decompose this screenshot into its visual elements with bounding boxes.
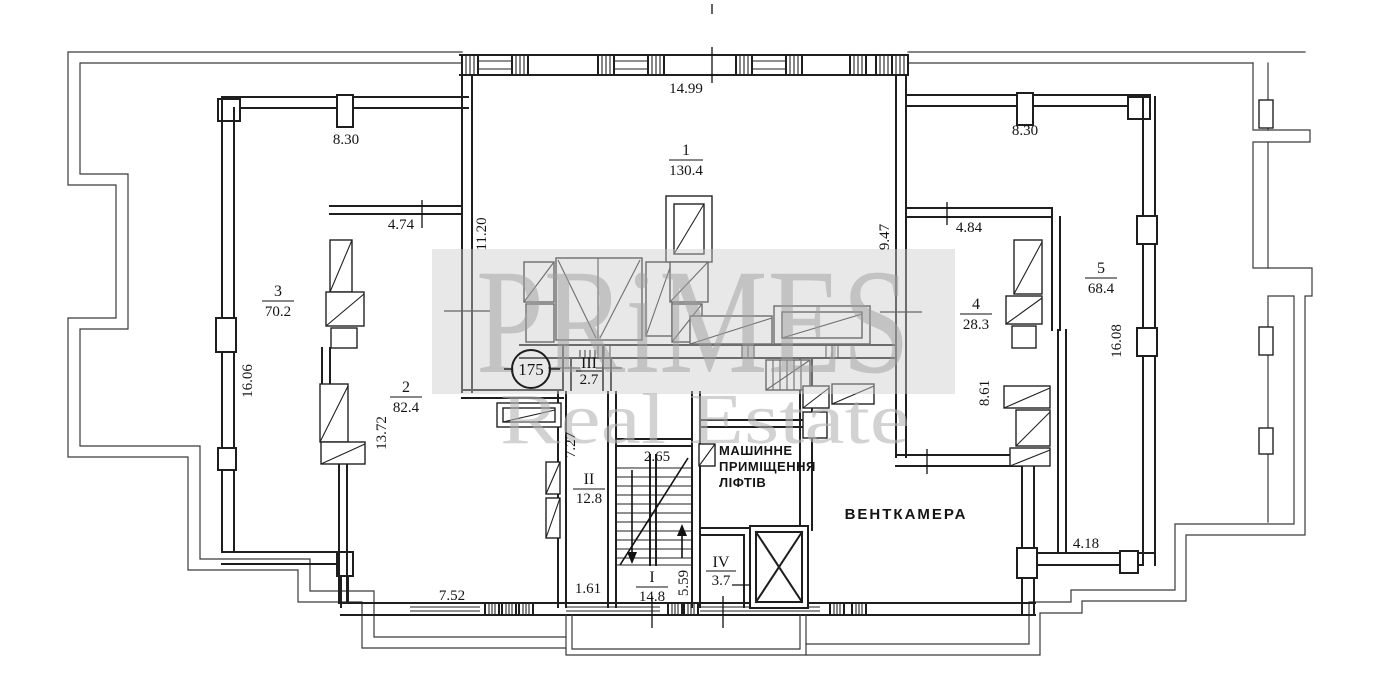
room-label-2: 2 82.4 <box>390 379 422 416</box>
svg-text:ПРИМІЩЕННЯ: ПРИМІЩЕННЯ <box>719 459 816 474</box>
floor-plan-drawing: PRiMES Real Estate 175 1 130.4 2 82.4 3 … <box>0 0 1400 690</box>
room-label-1: 1 130.4 <box>669 142 703 179</box>
dim-stair-landing: 2.65 <box>644 449 670 465</box>
svg-text:II: II <box>584 471 595 488</box>
dim-left-wing-bottom: 7.52 <box>439 588 465 604</box>
dim-room2-height: 13.72 <box>374 416 390 450</box>
dim-top-width: 14.99 <box>669 81 703 97</box>
dim-corridor-height: 7.27 <box>563 431 579 458</box>
vent-chamber-label: ВЕНТКАМЕРА <box>845 506 968 523</box>
room-label-II: II 12.8 <box>573 471 605 507</box>
watermark: PRiMES Real Estate <box>432 239 955 459</box>
svg-text:I: I <box>649 569 654 586</box>
room-label-IV: IV 3.7 <box>706 554 736 589</box>
svg-text:82.4: 82.4 <box>393 400 420 416</box>
room-label-I: I 14.8 <box>636 569 668 605</box>
plan-number: 175 <box>518 360 544 379</box>
dim-hall-left-height: 11.20 <box>474 217 490 250</box>
svg-text:IV: IV <box>713 554 730 571</box>
dim-vent-terrace: 4.18 <box>1073 536 1099 552</box>
room-label-4: 4 28.3 <box>960 296 992 333</box>
svg-text:III: III <box>581 355 597 372</box>
svg-text:5: 5 <box>1097 260 1105 277</box>
elevator-shaft <box>750 526 808 608</box>
svg-text:ЛІФТІВ: ЛІФТІВ <box>719 475 766 490</box>
svg-text:70.2: 70.2 <box>265 304 291 320</box>
svg-text:130.4: 130.4 <box>669 163 703 179</box>
north-window-wall <box>460 4 908 83</box>
dim-left-wing-top: 8.30 <box>333 132 359 148</box>
svg-text:14.8: 14.8 <box>639 589 665 605</box>
svg-text:2.7: 2.7 <box>580 372 599 388</box>
svg-text:2: 2 <box>402 379 410 396</box>
svg-text:68.4: 68.4 <box>1088 281 1115 297</box>
svg-text:4: 4 <box>972 296 980 313</box>
svg-text:12.8: 12.8 <box>576 491 602 507</box>
room-label-3: 3 70.2 <box>262 283 294 320</box>
dim-left-wall-height: 16.06 <box>240 364 256 398</box>
dim-right-wing-top: 8.30 <box>1012 123 1038 139</box>
dim-stair-flight: 5.59 <box>676 570 692 596</box>
watermark-subtitle: Real Estate <box>500 379 910 459</box>
dim-room4-height: 8.61 <box>977 380 993 406</box>
svg-text:3: 3 <box>274 283 282 300</box>
svg-text:1: 1 <box>682 142 690 159</box>
dim-corridor-door: 1.61 <box>575 581 601 597</box>
svg-text:28.3: 28.3 <box>963 317 989 333</box>
stair-treads <box>616 455 692 565</box>
room-label-5: 5 68.4 <box>1085 260 1117 297</box>
svg-text:3.7: 3.7 <box>712 573 731 589</box>
dim-room2-top: 4.74 <box>388 217 415 233</box>
floor-plan-page: PRiMES Real Estate 175 1 130.4 2 82.4 3 … <box>0 0 1400 690</box>
svg-text:МАШИННЕ: МАШИННЕ <box>719 443 793 458</box>
dim-right-wall-height: 16.08 <box>1109 324 1125 358</box>
dim-hall-right-height: 9.47 <box>877 223 893 250</box>
dim-room4-top: 4.84 <box>956 220 983 236</box>
